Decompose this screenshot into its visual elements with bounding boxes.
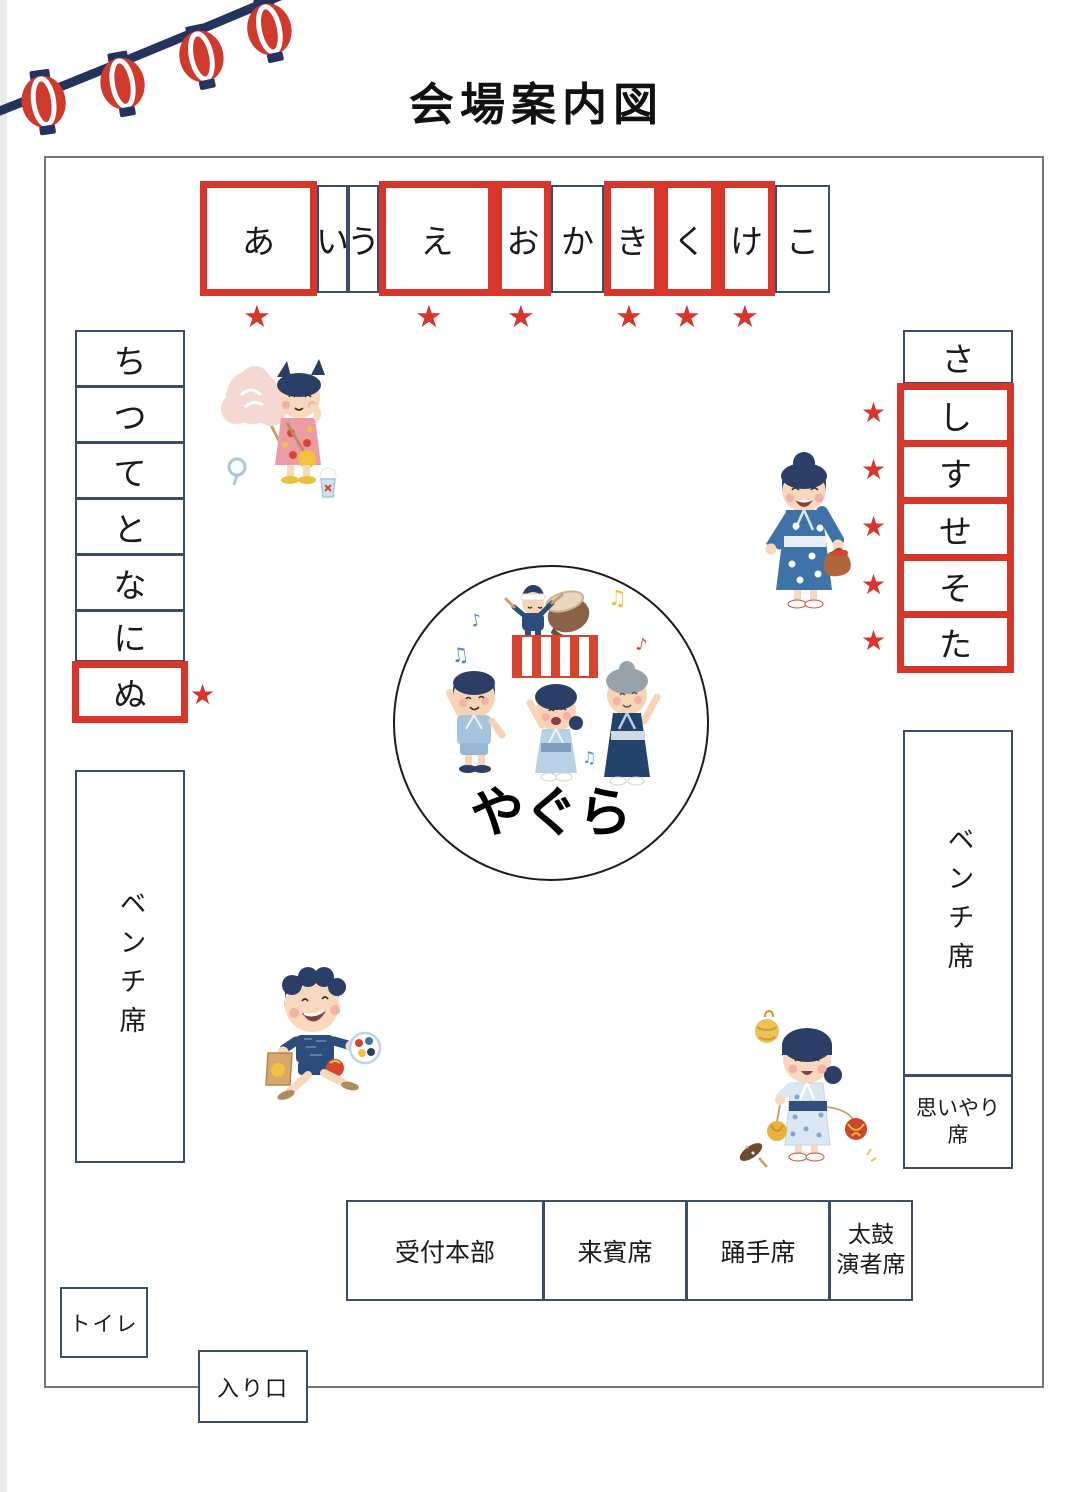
entrance: 入り口 (198, 1350, 308, 1423)
star-icon: ★ (243, 302, 271, 333)
stall-label: さ (942, 333, 975, 381)
stall-se: せ (897, 497, 1014, 561)
dancer-seats: 踊手席 (686, 1200, 830, 1301)
toilet-label: トイレ (70, 1308, 139, 1338)
stall-ke: け (718, 181, 775, 296)
dancing-boy-illustration (450, 671, 502, 773)
stall-label: ち (114, 335, 147, 383)
star-icon: ★ (861, 513, 886, 541)
stall-label: う (347, 215, 380, 263)
stall-label: ぬ (114, 668, 147, 716)
stall-nu: ぬ (72, 661, 188, 723)
festival-lanterns-illustration (0, 0, 300, 138)
girl-with-water-yoyo-illustration (735, 1005, 877, 1173)
area-label: 受付本部 (395, 1233, 495, 1269)
stall-label: な (114, 559, 147, 607)
bench-right: ベンチ席 (903, 730, 1013, 1076)
star-icon: ★ (507, 302, 535, 333)
guest-seats: 来賓席 (543, 1200, 687, 1301)
stall-ta: た (897, 611, 1014, 673)
stall-chi: ち (75, 330, 185, 387)
stall-label: と (114, 503, 147, 551)
area-label: 来賓席 (577, 1233, 652, 1269)
stall-o: お (495, 181, 551, 296)
star-icon: ★ (731, 302, 759, 333)
stall-to: と (75, 498, 185, 555)
music-note-icon: ♪ (634, 634, 649, 656)
music-note-icon: ♫ (608, 586, 627, 610)
stall-label: つ (114, 391, 147, 439)
stall-tsu: つ (75, 386, 185, 443)
stall-label: い (316, 215, 349, 263)
taiko-performer-seats: 太鼓 演者席 (829, 1200, 913, 1301)
star-icon: ★ (861, 627, 886, 655)
stall-ni: に (75, 610, 185, 662)
star-icon: ★ (673, 302, 701, 333)
stall-sa: さ (903, 330, 1013, 384)
stall-label: け (730, 215, 763, 263)
bench-left: ベンチ席 (75, 770, 185, 1163)
music-note-icon: ♪ (469, 610, 484, 632)
star-icon: ★ (861, 456, 886, 484)
stall-ka: か (551, 185, 604, 293)
star-icon: ★ (861, 571, 886, 599)
dancing-elderly-illustration (604, 661, 657, 785)
stall-label: あ (242, 215, 275, 263)
stall-e: え (379, 181, 495, 296)
lantern-icon (95, 48, 150, 120)
stall-ko: こ (775, 185, 830, 293)
lantern-icon (17, 67, 70, 137)
girl-with-cotton-candy-illustration (215, 345, 347, 507)
dancing-girl-illustration (530, 684, 583, 781)
stall-label: え (421, 215, 454, 263)
star-icon: ★ (190, 681, 215, 709)
bench-label: ベンチ席 (111, 889, 150, 1045)
stall-label: こ (786, 215, 819, 263)
venue-map-page: 会場案内図 あ い う え お か き く け こ ★ ★ ★ ★ ★ ★ ち … (0, 0, 1073, 1492)
stall-label: く (673, 215, 706, 263)
stall-ki: き (604, 181, 661, 296)
music-note-icon: ♫ (449, 642, 470, 668)
boy-running-with-festival-goods-illustration (250, 955, 388, 1105)
entrance-label: 入り口 (217, 1371, 289, 1403)
stall-label: に (114, 612, 147, 660)
lantern-icon (173, 21, 230, 94)
stall-su: す (897, 440, 1014, 504)
toilet: トイレ (60, 1287, 148, 1358)
stall-label: し (939, 391, 972, 439)
stall-te: て (75, 442, 185, 499)
striped-platform-illustration (512, 635, 598, 678)
stall-u: う (348, 185, 379, 293)
area-label: 太鼓 演者席 (837, 1221, 906, 1281)
stall-label: す (939, 448, 972, 496)
woman-in-blue-yukata-illustration (748, 448, 862, 618)
stall-label: て (114, 447, 147, 495)
stall-a: あ (200, 181, 317, 296)
stall-label: か (561, 215, 594, 263)
yagura-stage-label: やぐら (393, 768, 709, 847)
stall-label: き (616, 215, 649, 263)
stall-label: た (939, 618, 972, 666)
courtesy-seat-label: 思いやり 席 (916, 1095, 1000, 1150)
star-icon: ★ (861, 399, 886, 427)
stall-label: お (507, 215, 540, 263)
stall-na: な (75, 554, 185, 611)
music-note-icon: ♫ (582, 748, 596, 767)
page-edge (0, 0, 7, 1492)
bench-label: ベンチ席 (939, 825, 978, 981)
area-label: 踊手席 (720, 1233, 795, 1269)
stall-ku: く (661, 181, 718, 296)
star-icon: ★ (415, 302, 443, 333)
star-icon: ★ (615, 302, 643, 333)
reception-hq: 受付本部 (346, 1200, 544, 1301)
stall-label: そ (939, 562, 972, 610)
stall-so: そ (897, 554, 1014, 618)
stall-shi: し (897, 383, 1014, 447)
courtesy-seat: 思いやり 席 (903, 1075, 1013, 1169)
stall-i: い (317, 185, 348, 293)
stall-label: せ (939, 505, 972, 553)
